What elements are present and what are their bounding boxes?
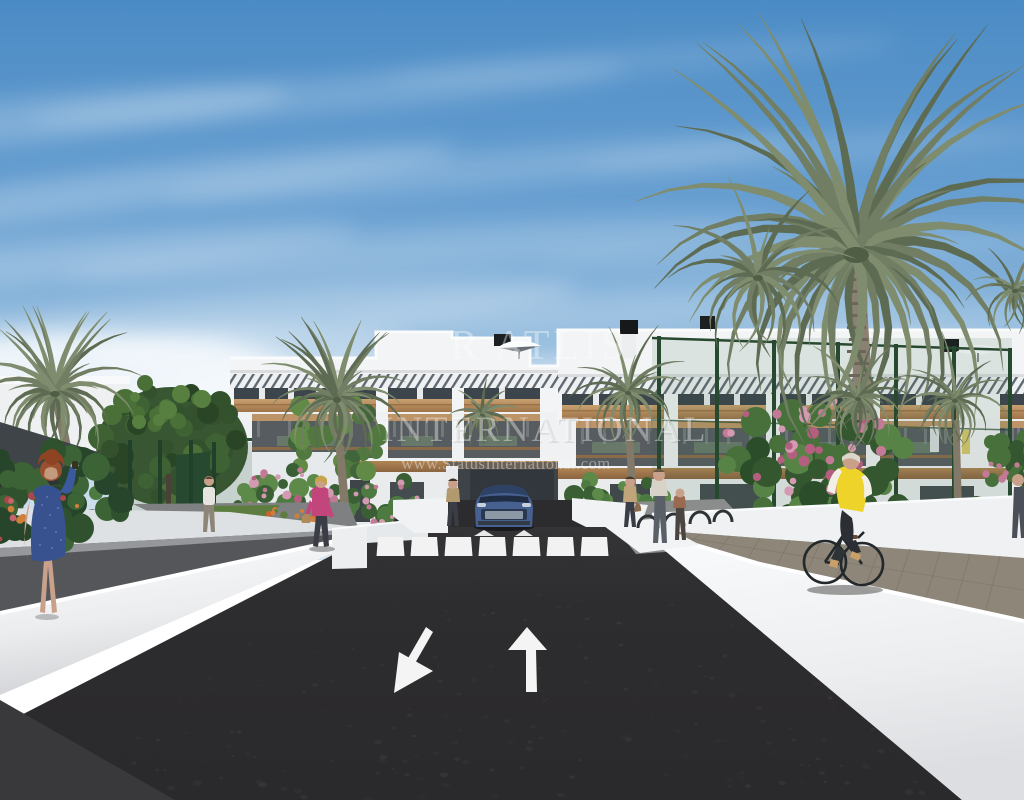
svg-text:R ATLIS: R ATLIS	[450, 323, 629, 369]
svg-text:INTERNATIONAL: INTERNATIONAL	[382, 409, 709, 449]
svg-text:www.StatusInternational.com: www.StatusInternational.com	[401, 454, 610, 473]
